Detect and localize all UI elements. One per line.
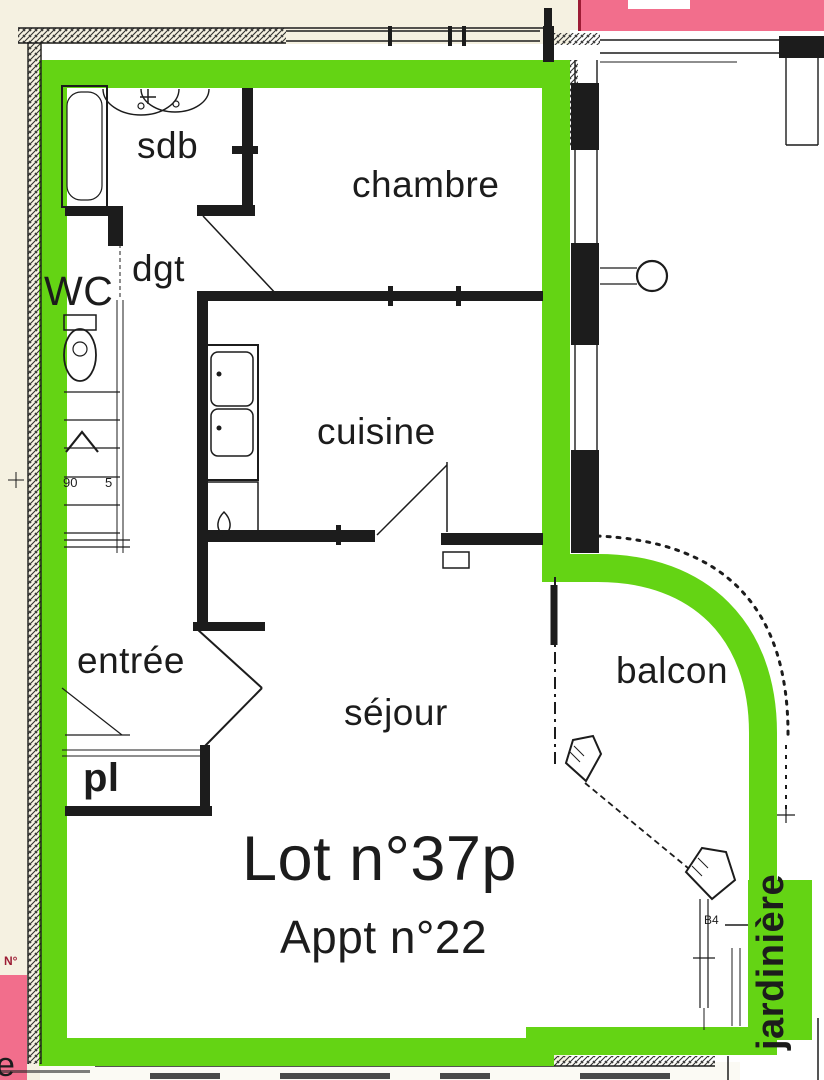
room-label-balcon: balcon bbox=[616, 652, 728, 689]
neighbor-lot-mark: N° bbox=[4, 955, 17, 967]
apartment-subtitle: Appt n°22 bbox=[280, 914, 487, 960]
room-label-chambre: chambre bbox=[352, 166, 499, 203]
stair-riser-annotation: 5 bbox=[105, 476, 112, 489]
room-label-wc: WC bbox=[44, 271, 113, 312]
room-label-placard: pl bbox=[83, 758, 120, 798]
room-label-sdb: sdb bbox=[137, 127, 198, 164]
room-label-jardiniere: jardinière bbox=[752, 874, 790, 1050]
pink-zone-top-right bbox=[578, 0, 824, 31]
floor-plan-canvas: sdb chambre WC dgt cuisine entrée séjour… bbox=[0, 0, 824, 1080]
room-label-dgt: dgt bbox=[132, 250, 185, 287]
cutoff-letter: e bbox=[0, 1048, 15, 1080]
lot-title: Lot n°37p bbox=[242, 828, 517, 891]
room-label-sejour: séjour bbox=[344, 694, 448, 731]
stair-width-annotation: 90 bbox=[63, 476, 77, 489]
balcony-mark-annotation: B4 bbox=[704, 914, 719, 926]
room-label-entree: entrée bbox=[77, 642, 185, 679]
room-label-cuisine: cuisine bbox=[317, 413, 436, 450]
